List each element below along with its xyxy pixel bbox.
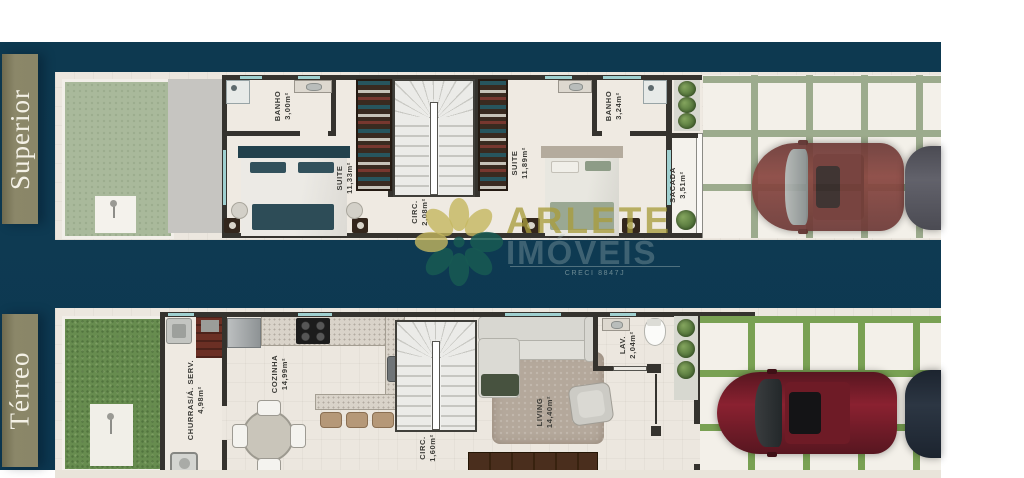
bar-stool-icon bbox=[372, 412, 394, 428]
bed-throw bbox=[252, 204, 334, 230]
cooktop-icon bbox=[296, 318, 330, 344]
wall-segment bbox=[160, 312, 165, 478]
bed-pillow bbox=[551, 161, 579, 173]
grill-rack bbox=[201, 320, 219, 332]
shower-icon bbox=[226, 80, 250, 104]
room-label-suite-2: SUITE11,89m² bbox=[509, 123, 531, 203]
wall-segment bbox=[630, 131, 672, 136]
car-gray-partial bbox=[905, 146, 941, 230]
window bbox=[298, 76, 320, 79]
wall-segment bbox=[222, 312, 227, 406]
nightstand-icon bbox=[224, 218, 240, 233]
stairs-flight bbox=[439, 117, 473, 195]
door-swing-line bbox=[655, 374, 657, 424]
laundry-tank-icon bbox=[166, 318, 192, 344]
floor-band-superior: Superior bbox=[2, 54, 38, 224]
dining-chair-icon bbox=[232, 424, 248, 448]
car-mirror bbox=[767, 369, 777, 374]
wardrobe-icon bbox=[478, 79, 508, 191]
outdoor-shower-icon bbox=[110, 418, 112, 434]
shrub-icon bbox=[677, 361, 695, 379]
toilet-tank bbox=[647, 319, 661, 326]
barbecue-grill-icon bbox=[196, 314, 224, 358]
floorplan-image: Superior bbox=[0, 0, 1024, 478]
bed-pillow bbox=[250, 162, 286, 173]
room-label-suite-1: SUITE11,33m² bbox=[334, 138, 356, 218]
window bbox=[168, 313, 194, 316]
outdoor-shower-head-icon bbox=[110, 200, 117, 207]
garden-service-notch bbox=[95, 196, 136, 233]
dining-table-icon bbox=[242, 410, 294, 462]
window bbox=[298, 313, 332, 316]
car-red-top-view bbox=[752, 143, 904, 231]
room-label-circ-terreo: CIRC.1,60m² bbox=[417, 408, 439, 478]
shrub-icon bbox=[677, 319, 695, 337]
watermark-license: CRECI 8847J bbox=[510, 270, 680, 277]
garden-service-notch bbox=[90, 404, 133, 466]
bar-stool-icon bbox=[346, 412, 368, 428]
toilet-icon bbox=[644, 318, 666, 346]
car-windshield bbox=[755, 379, 782, 448]
wall-segment bbox=[593, 366, 613, 371]
room-label-living: LIVING14,40m² bbox=[534, 372, 556, 452]
window bbox=[505, 313, 561, 316]
armchair-icon bbox=[567, 381, 614, 426]
washer-door bbox=[179, 458, 190, 469]
car-windshield bbox=[785, 149, 808, 225]
tank-basin bbox=[172, 324, 186, 338]
nightstand-icon bbox=[352, 218, 368, 233]
wall-segment bbox=[592, 131, 602, 136]
shrub-icon bbox=[678, 81, 696, 97]
superior-patio bbox=[168, 79, 222, 233]
planter-lower bbox=[674, 316, 698, 400]
watermark-divider bbox=[510, 266, 680, 267]
car-dark-partial bbox=[905, 370, 941, 458]
window bbox=[545, 76, 572, 79]
bed-pillow bbox=[298, 162, 334, 173]
shrub-icon bbox=[678, 113, 696, 129]
window bbox=[240, 76, 262, 79]
car-mirror bbox=[767, 452, 777, 457]
room-label-churras: CHURRAS/Á. SERV.4,98m² bbox=[185, 360, 207, 440]
bed-pillow bbox=[585, 161, 611, 171]
floor-band-superior-label: Superior bbox=[5, 89, 36, 190]
stairs-rail bbox=[430, 102, 438, 195]
bathroom-sink-icon bbox=[558, 80, 592, 93]
shrub-icon bbox=[678, 97, 696, 113]
car-sunroof bbox=[789, 392, 821, 435]
armchair-seat bbox=[576, 389, 605, 418]
wall-segment bbox=[592, 75, 597, 136]
floor-band-terreo-label: Térreo bbox=[5, 352, 36, 430]
wall-post bbox=[651, 426, 661, 436]
car-red-top-view bbox=[717, 372, 897, 454]
terreo-floorplan: CHURRAS/Á. SERV.4,98m² COZINHA14,99m² CI… bbox=[55, 308, 941, 478]
room-label-banho-1: BANHO3,00m² bbox=[272, 66, 294, 146]
floor-band-terreo: Térreo bbox=[2, 314, 38, 467]
shower-icon bbox=[643, 80, 667, 104]
bed-headboard bbox=[541, 146, 623, 158]
outdoor-shower-head-icon bbox=[107, 413, 114, 420]
car-mirror bbox=[798, 229, 808, 234]
planter-upper bbox=[674, 79, 700, 131]
bottom-cut-strip bbox=[55, 470, 941, 478]
bar-stool-icon bbox=[320, 412, 342, 428]
car-mirror bbox=[798, 140, 808, 145]
room-label-lav: LAV.2,04m² bbox=[617, 305, 639, 385]
dining-chair-icon bbox=[290, 424, 306, 448]
room-label-banho-2: BANHO3,24m² bbox=[603, 66, 625, 146]
staircase-upper bbox=[393, 79, 475, 197]
pouf-icon bbox=[231, 202, 248, 219]
room-label-cozinha: COZINHA14,99m² bbox=[269, 334, 291, 414]
wall-segment bbox=[160, 312, 755, 317]
wall-segment bbox=[647, 364, 661, 373]
sofa-throw bbox=[481, 374, 519, 396]
bathroom-sink-icon bbox=[294, 80, 332, 93]
stairs-flight bbox=[441, 357, 475, 430]
window bbox=[223, 150, 226, 205]
shrub-icon bbox=[677, 340, 695, 358]
wardrobe-icon bbox=[356, 79, 392, 191]
breakfast-bar bbox=[315, 394, 405, 410]
fridge-icon bbox=[227, 318, 261, 348]
brand-flower-logo-icon bbox=[413, 196, 505, 288]
wall-segment bbox=[672, 133, 698, 138]
wall-segment bbox=[593, 316, 598, 370]
sacada-railing bbox=[696, 133, 703, 238]
car-sunroof bbox=[816, 166, 840, 208]
